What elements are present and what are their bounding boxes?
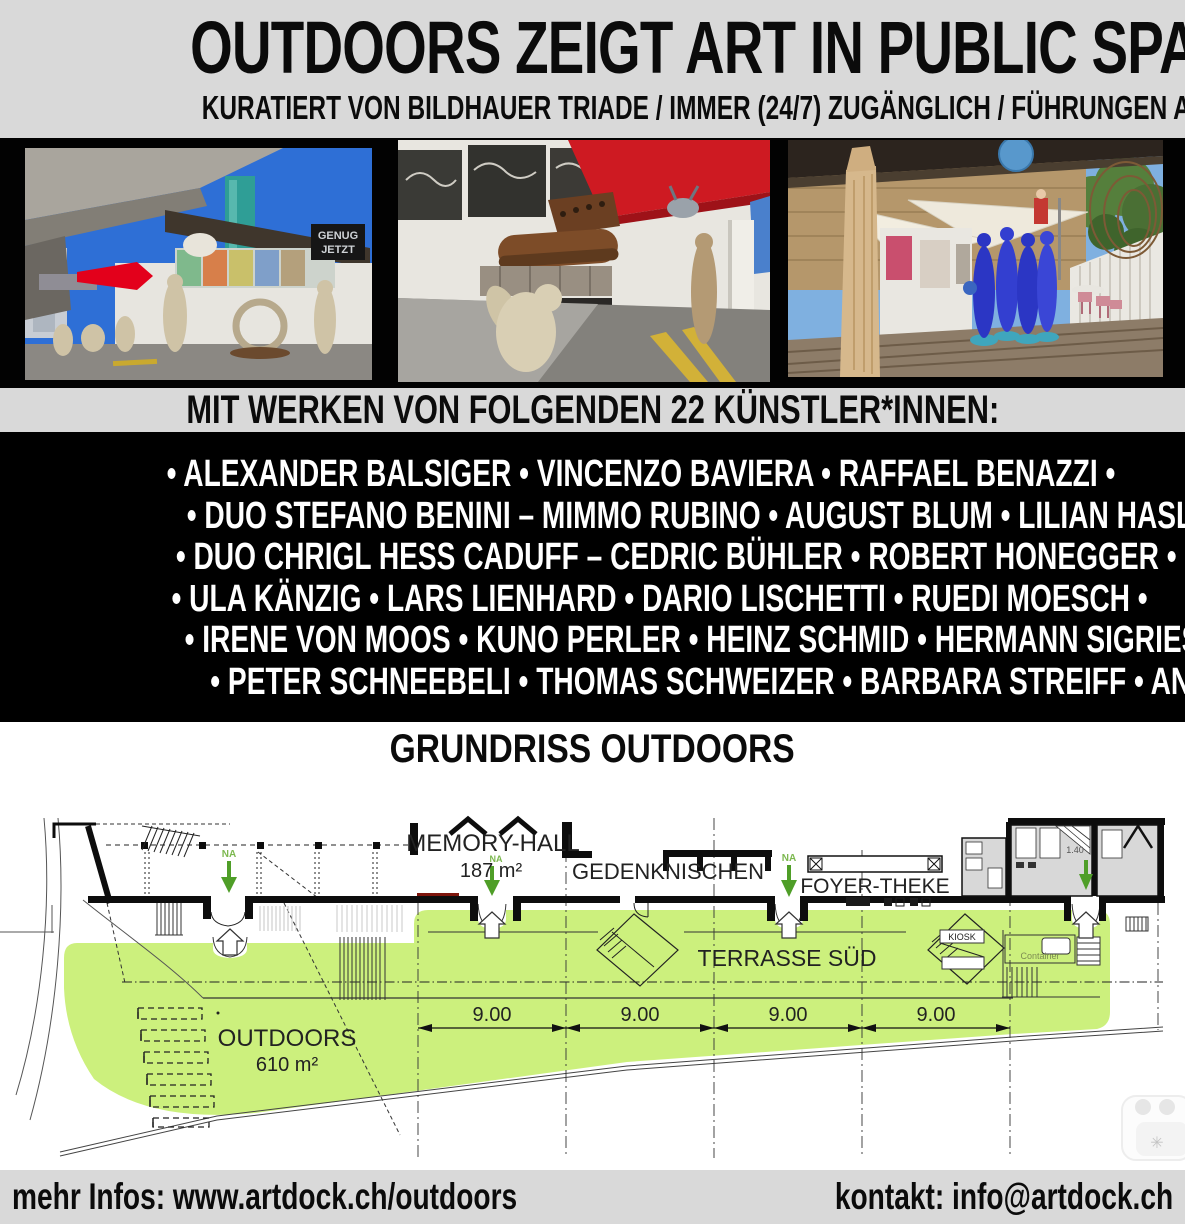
memory-hall-label: MEMORY-HALL bbox=[406, 830, 579, 857]
plan-heading: GRUNDRISS OUTDOORS bbox=[0, 728, 1185, 770]
photo-strip: GENUG JETZT bbox=[0, 138, 1185, 388]
svg-text:JETZT: JETZT bbox=[321, 244, 355, 256]
svg-text:1.40: 1.40 bbox=[1066, 845, 1084, 855]
gedenknischen-label: GEDENKNISCHEN bbox=[572, 859, 764, 884]
contact-email-link[interactable]: kontakt: info@artdock.ch bbox=[835, 1176, 1173, 1218]
poster: OUTDOORS ZEIGT ART IN PUBLIC SPACE KURAT… bbox=[0, 0, 1185, 1224]
floor-plan: KIOSK Container 1.40 bbox=[0, 775, 1185, 1165]
header-band: OUTDOORS ZEIGT ART IN PUBLIC SPACE KURAT… bbox=[0, 0, 1185, 138]
artist-line: • DUO CHRIGL HESS CADUFF – CEDRIC BÜHLER… bbox=[0, 537, 1185, 579]
artists-list: • ALEXANDER BALSIGER • VINCENZO BAVIERA … bbox=[0, 432, 1185, 722]
artist-line: • IRENE VON MOOS • KUNO PERLER • HEINZ S… bbox=[0, 620, 1185, 662]
artist-line: • ALEXANDER BALSIGER • VINCENZO BAVIERA … bbox=[0, 454, 1185, 496]
svg-text:GENUG: GENUG bbox=[318, 230, 358, 242]
photo-terrace-blue-figures bbox=[788, 140, 1163, 377]
svg-text:9.00: 9.00 bbox=[769, 1004, 808, 1026]
svg-text:9.00: 9.00 bbox=[473, 1004, 512, 1026]
photo-overpass-sculptures: GENUG JETZT bbox=[25, 148, 372, 380]
footer: mehr Infos: www.artdock.ch/outdoors kont… bbox=[0, 1170, 1185, 1224]
artists-banner: MIT WERKEN VON FOLGENDEN 22 KÜNSTLER*INN… bbox=[0, 388, 1185, 432]
memory-hall-area-label: 187 m² bbox=[460, 860, 523, 882]
photo-courtyard-sculptures bbox=[398, 140, 770, 382]
outdoors-label: OUTDOORS bbox=[218, 1025, 357, 1052]
svg-text:9.00: 9.00 bbox=[621, 1004, 660, 1026]
page-title: OUTDOORS ZEIGT ART IN PUBLIC SPACE bbox=[0, 10, 1185, 86]
terrasse-sued-label: TERRASSE SÜD bbox=[698, 945, 877, 971]
svg-text:Container: Container bbox=[1020, 951, 1059, 961]
svg-text:9.00: 9.00 bbox=[917, 1004, 956, 1026]
artist-line: • PETER SCHNEEBELI • THOMAS SCHWEIZER • … bbox=[0, 662, 1185, 704]
svg-text:KIOSK: KIOSK bbox=[948, 932, 976, 942]
svg-text:NA: NA bbox=[782, 853, 796, 864]
artist-line: • ULA KÄNZIG • LARS LIENHARD • DARIO LIS… bbox=[0, 579, 1185, 621]
svg-text:✳: ✳ bbox=[1150, 1135, 1163, 1152]
foyer-theke-label: FOYER-THEKE bbox=[800, 875, 949, 898]
outdoors-area-label: 610 m² bbox=[256, 1054, 319, 1076]
artist-line: • DUO STEFANO BENINI – MIMMO RUBINO • AU… bbox=[0, 496, 1185, 538]
page-widget: ✳ bbox=[1122, 1096, 1185, 1160]
info-url-link[interactable]: mehr Infos: www.artdock.ch/outdoors bbox=[12, 1176, 517, 1218]
page-subtitle: KURATIERT VON BILDHAUER TRIADE / IMMER (… bbox=[0, 90, 1185, 126]
svg-text:NA: NA bbox=[222, 849, 236, 860]
red-wall-mark bbox=[417, 893, 459, 896]
